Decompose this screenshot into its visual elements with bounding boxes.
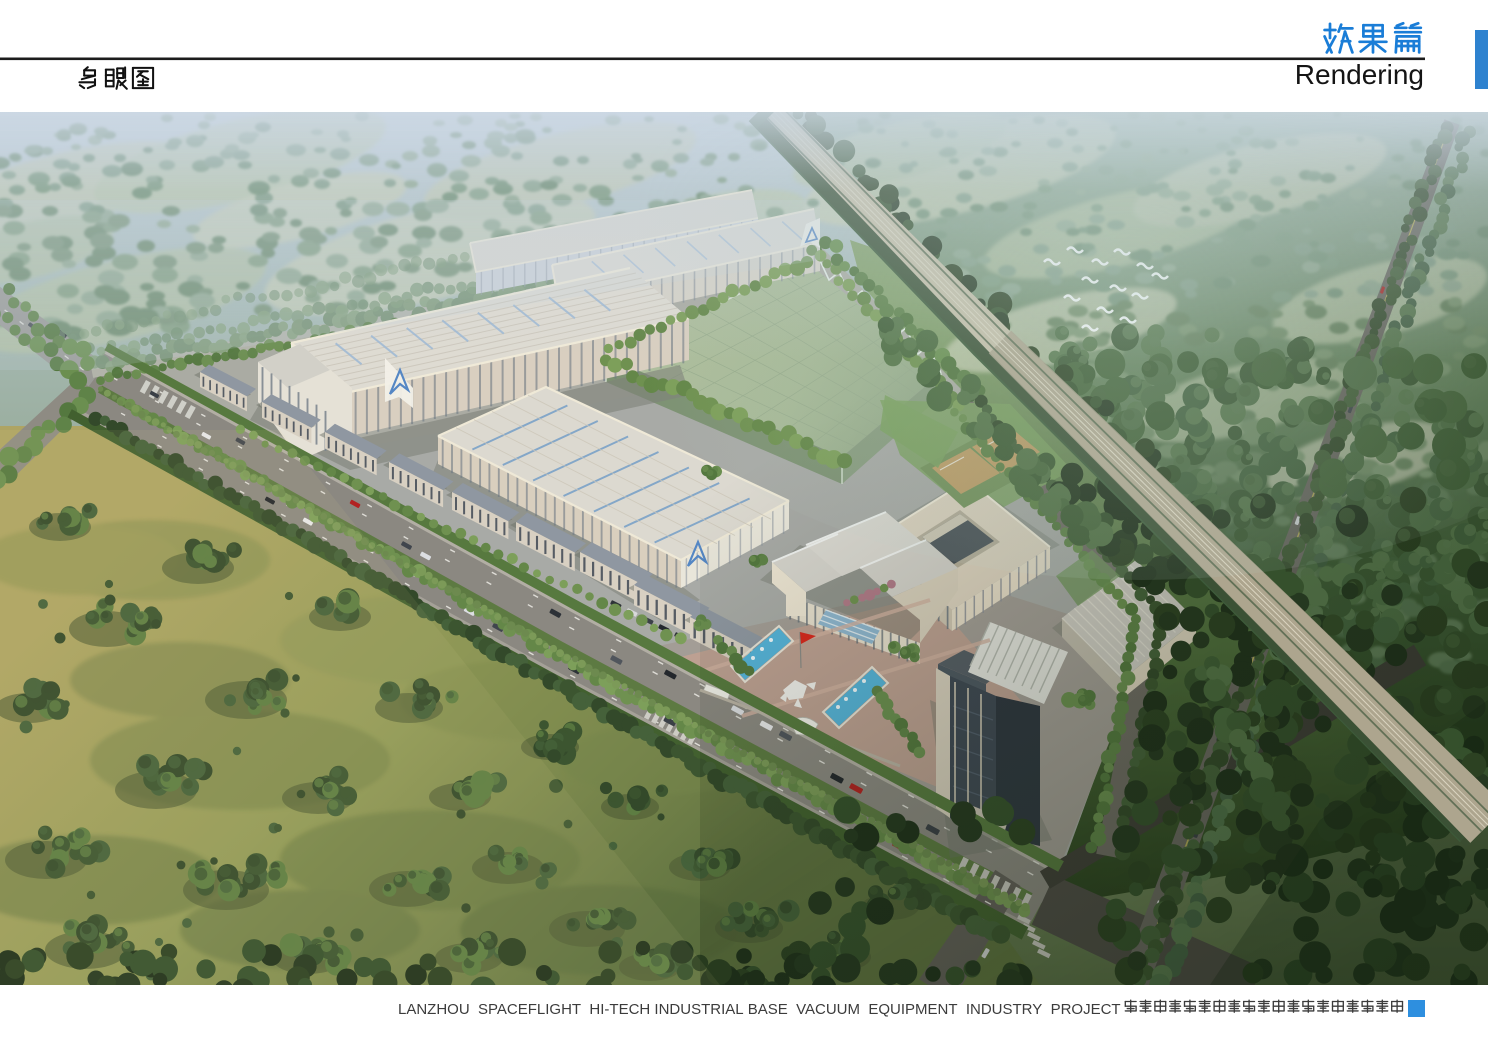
svg-text:LANZHOU SPACEFLIGHT HI-TECH: LANZHOU SPACEFLIGHT HI-TECH INDUSTRIAL B… [398, 1001, 1121, 1018]
svg-text:Rendering: Rendering [1295, 59, 1424, 90]
